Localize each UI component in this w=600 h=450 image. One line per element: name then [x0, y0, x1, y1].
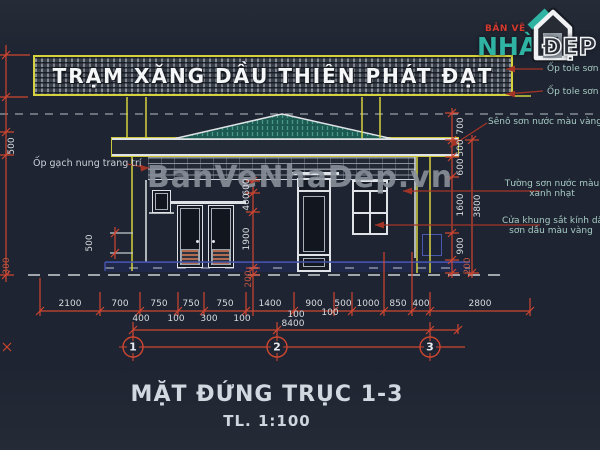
dim-bottom-3: 750 — [150, 299, 167, 309]
note-tole-2: Ốp tole sơn d — [547, 87, 600, 97]
dim-sub-2: 100 — [167, 314, 184, 324]
note-wall-paint: Tường sơn nước màu xanh nhạt — [504, 179, 600, 199]
step-bracket — [110, 233, 133, 253]
dim-bottom-10: 850 — [389, 299, 406, 309]
logo-text-dep: ĐẸP — [542, 33, 596, 61]
footing-box — [422, 234, 442, 256]
signboard-title: TRẠM XĂNG DẦU THIÊN PHÁT ĐẠT — [35, 57, 511, 94]
glass-door-pane — [303, 196, 325, 252]
dim-center-400: 400 — [242, 193, 252, 210]
door-right-louver — [212, 249, 230, 265]
dim-sub-3: 300 — [200, 314, 217, 324]
dim-bottom-5: 750 — [216, 299, 233, 309]
dim-right-200: 200 — [463, 257, 473, 274]
window-mullion-horizontal — [354, 212, 386, 214]
dim-bottom-12: 2800 — [469, 299, 492, 309]
dim-center-200: 200 — [244, 270, 254, 287]
dim-right-500: 500 — [456, 139, 466, 156]
glass-door-divider — [299, 254, 329, 256]
dim-sub-1: 400 — [132, 314, 149, 324]
watermark: BanVeNhaDep.vn — [140, 160, 460, 195]
dim-right-900: 900 — [456, 237, 466, 254]
dim-center-1900: 1900 — [242, 228, 252, 251]
dim-left-300: 300 — [2, 257, 12, 274]
dim-total: 8400 — [282, 319, 305, 329]
dim-left-500: 500 — [7, 137, 17, 154]
drawing-title: MẶT ĐỨNG TRỤC 1-3 — [117, 382, 417, 407]
dim-step-500: 500 — [85, 234, 95, 251]
door-right-knob — [212, 240, 215, 243]
note-seno: Sênô sơn nước màu vàng cam — [488, 117, 600, 127]
dim-sub-6: 100 — [321, 308, 338, 318]
glass-door-bottom-panel — [303, 258, 325, 267]
note-tole-1: Ốp tole sơn d — [547, 64, 600, 74]
dim-bottom-4: 750 — [182, 299, 199, 309]
door-left-knob — [196, 240, 199, 243]
door-canopy — [170, 201, 246, 204]
axis-bubble-3: 3 — [426, 341, 434, 354]
roof-gable — [173, 114, 393, 139]
dim-right-700: 700 — [456, 117, 466, 134]
dim-sub-4: 100 — [233, 314, 250, 324]
axis-bubbles — [119, 333, 444, 361]
door-left-louver — [181, 249, 199, 265]
dim-bottom-11: 400 — [412, 299, 429, 309]
axis-bubble-1: 1 — [129, 341, 137, 354]
dim-bottom-2: 700 — [111, 299, 128, 309]
cad-elevation-drawing: TRẠM XĂNG DẦU THIÊN PHÁT ĐẠT — [0, 0, 600, 450]
dim-bottom-7: 900 — [305, 299, 322, 309]
small-window-pane — [155, 193, 168, 210]
plinth-step — [105, 262, 470, 272]
dim-right-600: 600 — [456, 158, 466, 175]
door-right — [208, 205, 234, 268]
door-left — [177, 205, 203, 268]
dim-bottom-9: 1000 — [357, 299, 380, 309]
site-logo: NHÀ BẢN VẼ ĐẸP — [474, 6, 600, 66]
dim-right-1600: 1600 — [456, 194, 466, 217]
note-brick-cladding: Ốp gạch nung trang trí — [33, 158, 142, 169]
drawing-scale: TL. 1:100 — [117, 412, 417, 430]
dim-right-total: 3800 — [473, 195, 483, 218]
seno-band — [112, 138, 458, 156]
note-steel-door: Cửa khung sắt kính dầy 5 sơn dầu màu vàn… — [502, 216, 600, 236]
dim-bottom-6: 1400 — [259, 299, 282, 309]
dim-bottom-1: 2100 — [59, 299, 82, 309]
logo-text-banve: BẢN VẼ — [485, 24, 526, 34]
axis-bubble-2: 2 — [273, 341, 281, 354]
signboard: TRẠM XĂNG DẦU THIÊN PHÁT ĐẠT — [33, 55, 513, 96]
